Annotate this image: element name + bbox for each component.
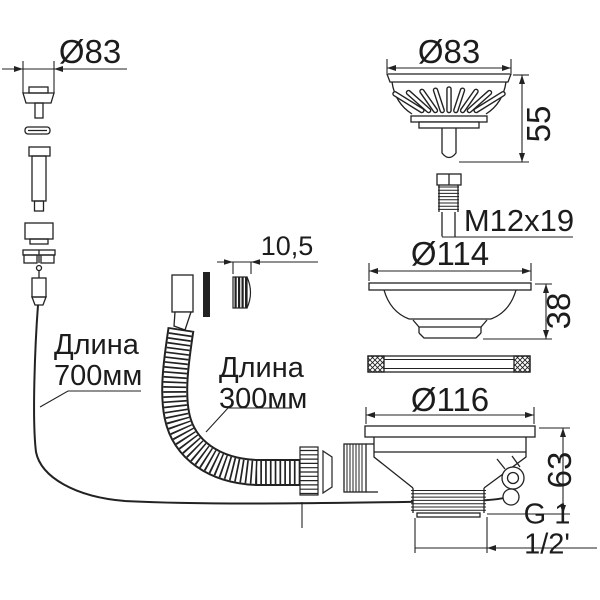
dim-flange-height-label: 38 [542,293,576,330]
flat-washer [203,272,210,317]
cone-washer [323,451,332,493]
gasket [368,356,530,372]
strainer-basket [387,59,529,162]
outlet-thread [411,488,486,517]
dim-cap-diameter-label: Ø83 [59,35,121,69]
dim-basket-height-label: 55 [522,106,556,143]
side-inlet [344,444,378,492]
plug-assembly [2,61,127,305]
hose-nut [300,447,318,495]
dim-outlet-thread-label: G 1 1/2' [521,500,574,559]
dim-basket-diameter-label: Ø83 [418,35,480,69]
corrugated-hose-length-label: Длина 300мм [219,353,307,414]
sink-flange [369,263,552,339]
dim-flange-diameter-label: Ø114 [411,237,489,271]
technical-drawing: Ø83 Ø83 55 M12x19 Ø114 38 Ø116 63 G 1 1/… [0,0,600,600]
hose-end-fitting [172,275,193,330]
dim-olive-lines [217,259,318,274]
dim-screw-thread-label: M12x19 [464,205,574,237]
dim-olive-label: 10,5 [261,233,314,261]
drawing-canvas [0,0,600,600]
dim-body-diameter-label: Ø116 [411,383,489,417]
ribbed-olive [233,277,251,308]
dim-body-height-label: 63 [543,452,577,489]
overflow-hose-length-label: Длина 700мм [54,330,142,391]
